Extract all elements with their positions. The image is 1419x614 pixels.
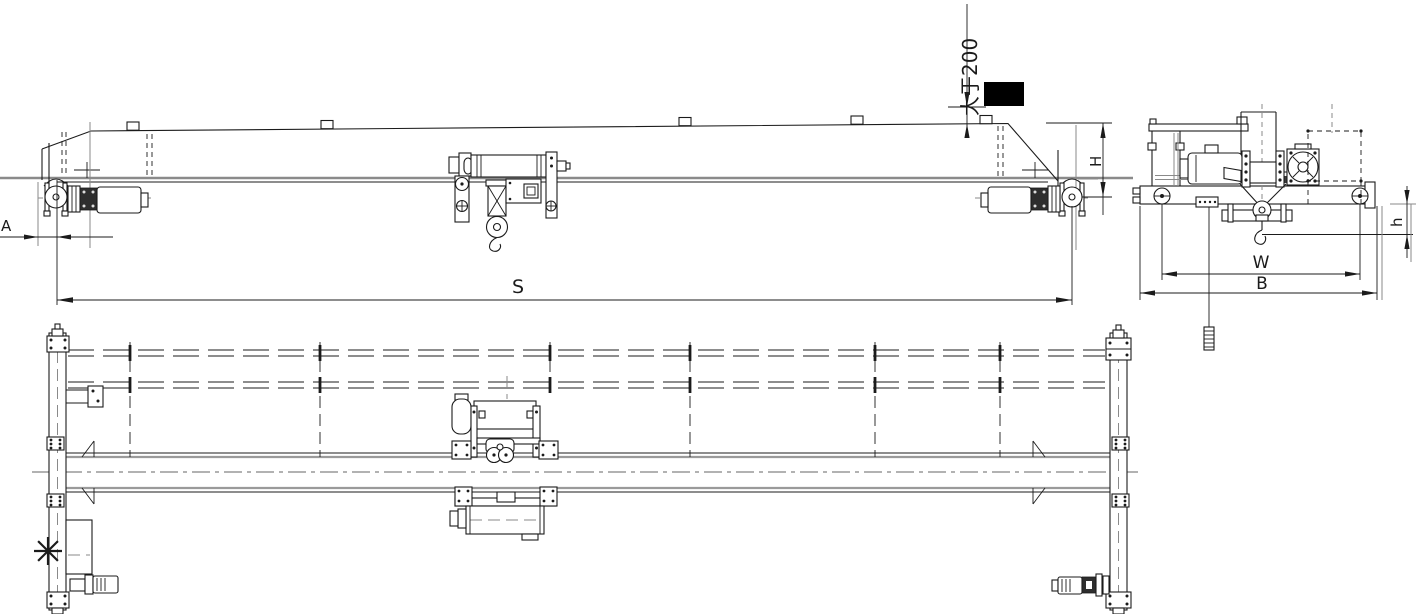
clearance-label: 大于200 xyxy=(958,38,982,116)
hook-pulley xyxy=(487,217,508,238)
buffer xyxy=(1113,608,1124,614)
trolley-wheel-block xyxy=(452,441,471,459)
stiffener-flag xyxy=(82,488,94,504)
trolley-wheel-block xyxy=(540,487,557,506)
hoist-plan xyxy=(450,376,558,540)
bolt-cluster xyxy=(47,494,64,507)
bridge-girder xyxy=(42,116,1076,251)
bolt-cluster xyxy=(1112,494,1129,507)
wheel-block xyxy=(47,592,69,608)
right-end-carriage-plan xyxy=(1052,325,1131,614)
dimension-hook: h xyxy=(1388,186,1416,262)
wheel-block xyxy=(1106,592,1131,608)
reference-star-mark xyxy=(34,537,62,565)
obstruction-block xyxy=(984,82,1024,106)
left-end-truck xyxy=(38,179,155,216)
span-label: S xyxy=(512,276,524,298)
approach-label: A xyxy=(1,217,12,235)
brake-unit xyxy=(1031,188,1048,210)
pendant-control xyxy=(1196,197,1218,350)
buffer xyxy=(52,608,63,614)
electric-hoist-elevation xyxy=(449,152,570,251)
trolley-wheel xyxy=(1224,168,1241,182)
hoist-plan-upper xyxy=(452,394,558,463)
travel-wheel xyxy=(45,186,67,208)
brake-unit xyxy=(80,188,97,210)
front-elevation-view: S A H 大于200 xyxy=(0,4,1133,305)
stiffener-flag xyxy=(82,441,94,457)
plan-view xyxy=(32,324,1140,614)
shaft-support-marks xyxy=(130,342,1000,457)
travel-motor xyxy=(97,187,141,213)
travel-wheel xyxy=(1062,187,1082,207)
end-view: W B h xyxy=(1133,104,1416,350)
stiffener-flag xyxy=(1033,441,1045,457)
gear-housing-plan xyxy=(66,520,92,574)
base-label: B xyxy=(1256,274,1268,294)
hoist-motor-plan xyxy=(452,399,471,434)
right-end-truck xyxy=(975,179,1092,216)
gauge-label: W xyxy=(1253,253,1270,273)
end-carriage-beam xyxy=(1133,182,1375,208)
walkway-lines xyxy=(68,350,1105,388)
wheel-block xyxy=(47,336,69,352)
travel-motor xyxy=(988,187,1031,213)
bolt-cluster xyxy=(1112,437,1129,450)
runway-rail-line xyxy=(0,178,1133,182)
stiffener-flag xyxy=(1033,488,1045,504)
buffer xyxy=(1113,330,1124,338)
girder-plan xyxy=(65,441,1110,504)
trolley-wheel-block xyxy=(455,487,472,506)
hoist-drum-housing xyxy=(471,155,546,177)
crane-drawing-canvas: S A H 大于200 xyxy=(0,0,1419,614)
dimension-span: S xyxy=(57,180,1072,305)
bolt-cluster xyxy=(47,437,64,450)
drawing-sheet: S A H 大于200 xyxy=(0,0,1419,614)
hook xyxy=(490,238,501,252)
hoist-plan-lower xyxy=(450,487,557,540)
lifting-lug xyxy=(127,116,992,131)
hook-label: h xyxy=(1388,217,1406,227)
trolley-wheel-block xyxy=(539,441,558,459)
buffer xyxy=(52,329,63,336)
height-label: H xyxy=(1087,156,1105,167)
left-end-carriage-plan xyxy=(34,324,118,614)
bearing-bracket xyxy=(88,386,103,407)
hook-end-view xyxy=(1255,230,1266,244)
